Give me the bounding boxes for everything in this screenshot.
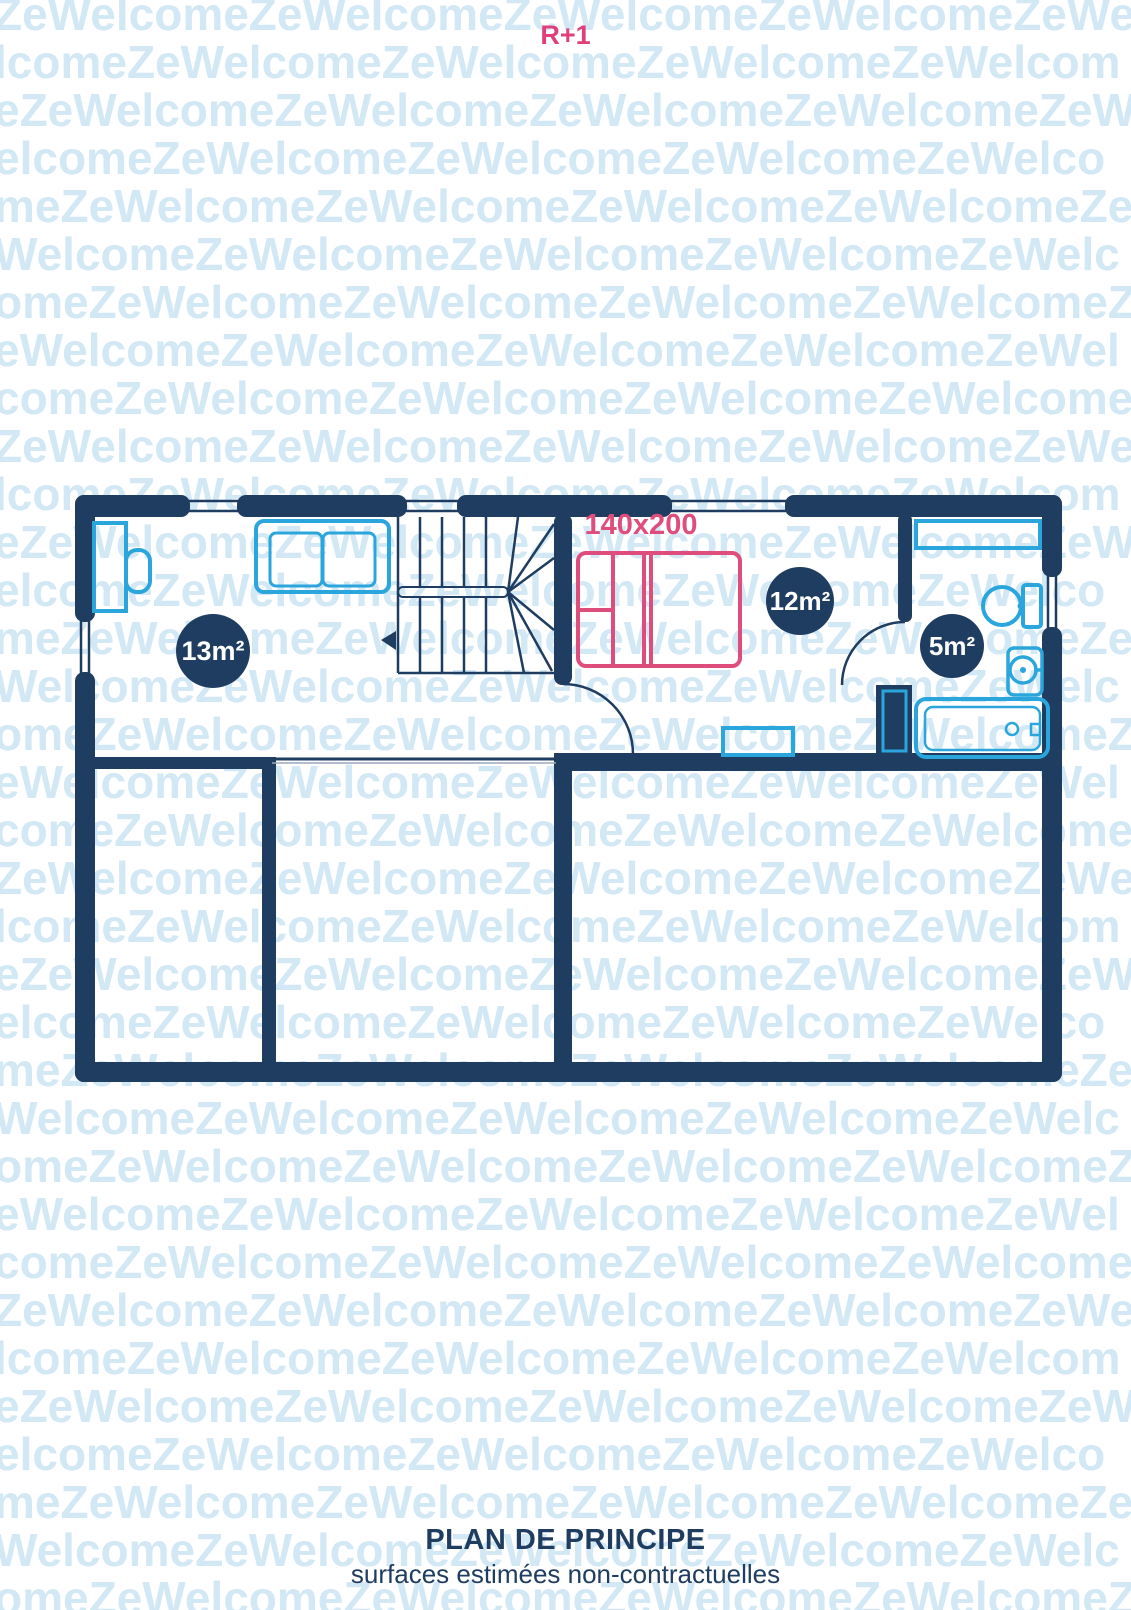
area-badge-13m2: 13m² <box>176 614 250 688</box>
area-badge-5m2: 5m² <box>920 614 984 678</box>
area-label: 12m² <box>770 586 831 616</box>
bed-dimension-label: 140x200 <box>585 509 698 541</box>
plan-subtitle: surfaces estimées non-contractuelles <box>0 1559 1131 1590</box>
wall <box>262 757 276 1067</box>
wall <box>554 753 572 1067</box>
wall <box>898 514 912 622</box>
wall <box>554 514 572 685</box>
area-label: 13m² <box>181 636 244 666</box>
stair-void-line <box>272 759 556 763</box>
wall <box>1042 627 1062 1082</box>
stairs <box>398 517 554 673</box>
radiator <box>723 728 793 755</box>
sofa <box>256 521 389 592</box>
wall <box>785 495 1062 517</box>
wall <box>1042 495 1062 577</box>
interior-walls <box>80 514 1052 1067</box>
area-badge-12m2: 12m² <box>766 567 834 635</box>
door-arc-bathroom <box>842 622 905 685</box>
desk-chair <box>126 550 150 592</box>
sink <box>1008 648 1043 695</box>
stairs-direction-arrow <box>381 631 396 650</box>
wall <box>75 672 95 1082</box>
floor-plan: 140x200 13m² 12m² 5m² <box>0 0 1131 1600</box>
bathroom-shelf <box>916 521 1040 548</box>
plan-title: PLAN DE PRINCIPE <box>0 1524 1131 1557</box>
area-label: 5m² <box>929 631 976 661</box>
plan-caption: PLAN DE PRINCIPE surfaces estimées non-c… <box>0 1524 1131 1590</box>
wall <box>80 757 276 769</box>
bathtub <box>916 699 1048 757</box>
desk <box>94 523 126 611</box>
wall <box>237 495 407 517</box>
toilet <box>983 585 1041 627</box>
door-arc-bedroom <box>563 684 633 754</box>
bed <box>578 553 740 666</box>
